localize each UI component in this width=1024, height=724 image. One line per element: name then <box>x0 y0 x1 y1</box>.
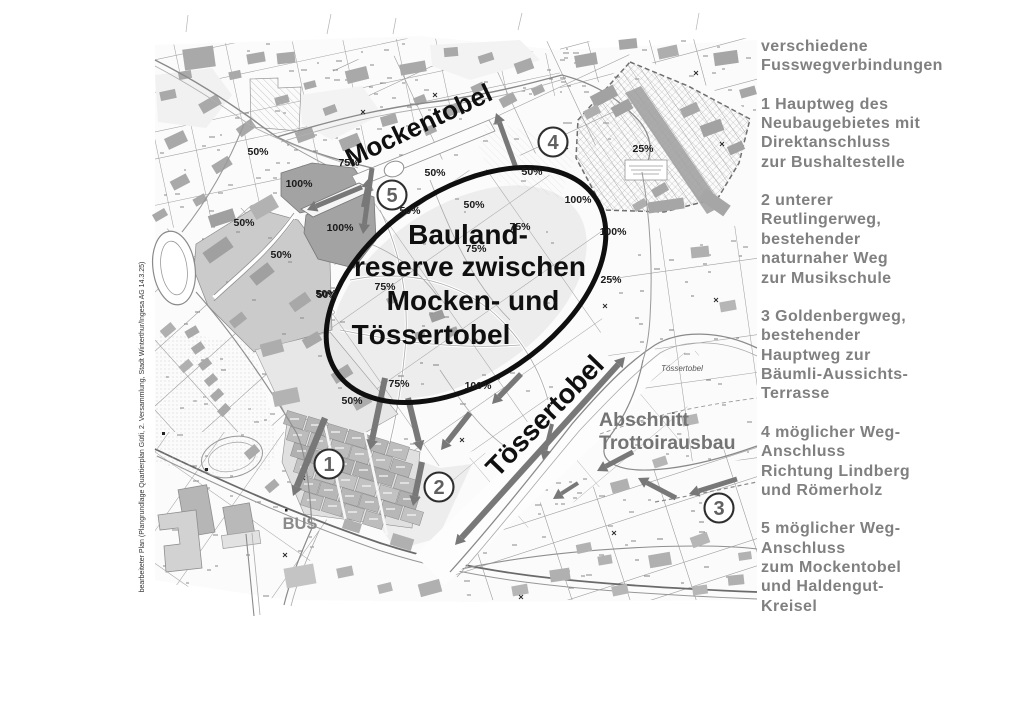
svg-text:reserve zwischen: reserve zwischen <box>354 251 586 282</box>
svg-text:50%: 50% <box>521 166 543 178</box>
svg-text:50%: 50% <box>270 249 292 261</box>
svg-text:Tössertobel: Tössertobel <box>661 364 703 373</box>
svg-text:50%: 50% <box>247 146 269 158</box>
svg-text:100%: 100% <box>465 380 493 392</box>
svg-text:50%: 50% <box>233 217 255 229</box>
svg-text:75%: 75% <box>465 243 487 255</box>
svg-text:Trottoirausbau: Trottoirausbau <box>599 432 736 454</box>
svg-text:25%: 25% <box>600 274 622 286</box>
svg-text:100%: 100% <box>327 222 355 234</box>
svg-text:100%: 100% <box>565 194 593 206</box>
svg-text:50%: 50% <box>424 167 446 179</box>
svg-text:bearbeiteter Plan (Plangrundla: bearbeiteter Plan (Plangrundlage Quartie… <box>139 262 146 593</box>
svg-text:75%: 75% <box>338 157 360 169</box>
svg-text:BUS: BUS <box>283 515 318 533</box>
svg-text:50%: 50% <box>341 395 363 407</box>
svg-text:100%: 100% <box>286 178 314 190</box>
svg-text:100%: 100% <box>600 226 628 238</box>
svg-text:Mocken- und: Mocken- und <box>387 285 560 316</box>
svg-text:3: 3 <box>713 498 724 520</box>
svg-text:Abschnitt: Abschnitt <box>599 409 689 431</box>
svg-text:5: 5 <box>386 185 397 207</box>
svg-text:75%: 75% <box>509 221 531 233</box>
svg-text:2: 2 <box>433 477 444 499</box>
svg-text:1: 1 <box>323 454 334 476</box>
svg-text:50%: 50% <box>399 205 421 217</box>
svg-text:50%: 50% <box>315 288 337 300</box>
svg-text:4: 4 <box>547 132 559 154</box>
svg-text:75%: 75% <box>374 281 396 293</box>
svg-text:50%: 50% <box>463 199 485 211</box>
svg-text:Tössertobel: Tössertobel <box>352 319 511 350</box>
svg-text:25%: 25% <box>632 143 654 155</box>
svg-text:75%: 75% <box>388 378 410 390</box>
